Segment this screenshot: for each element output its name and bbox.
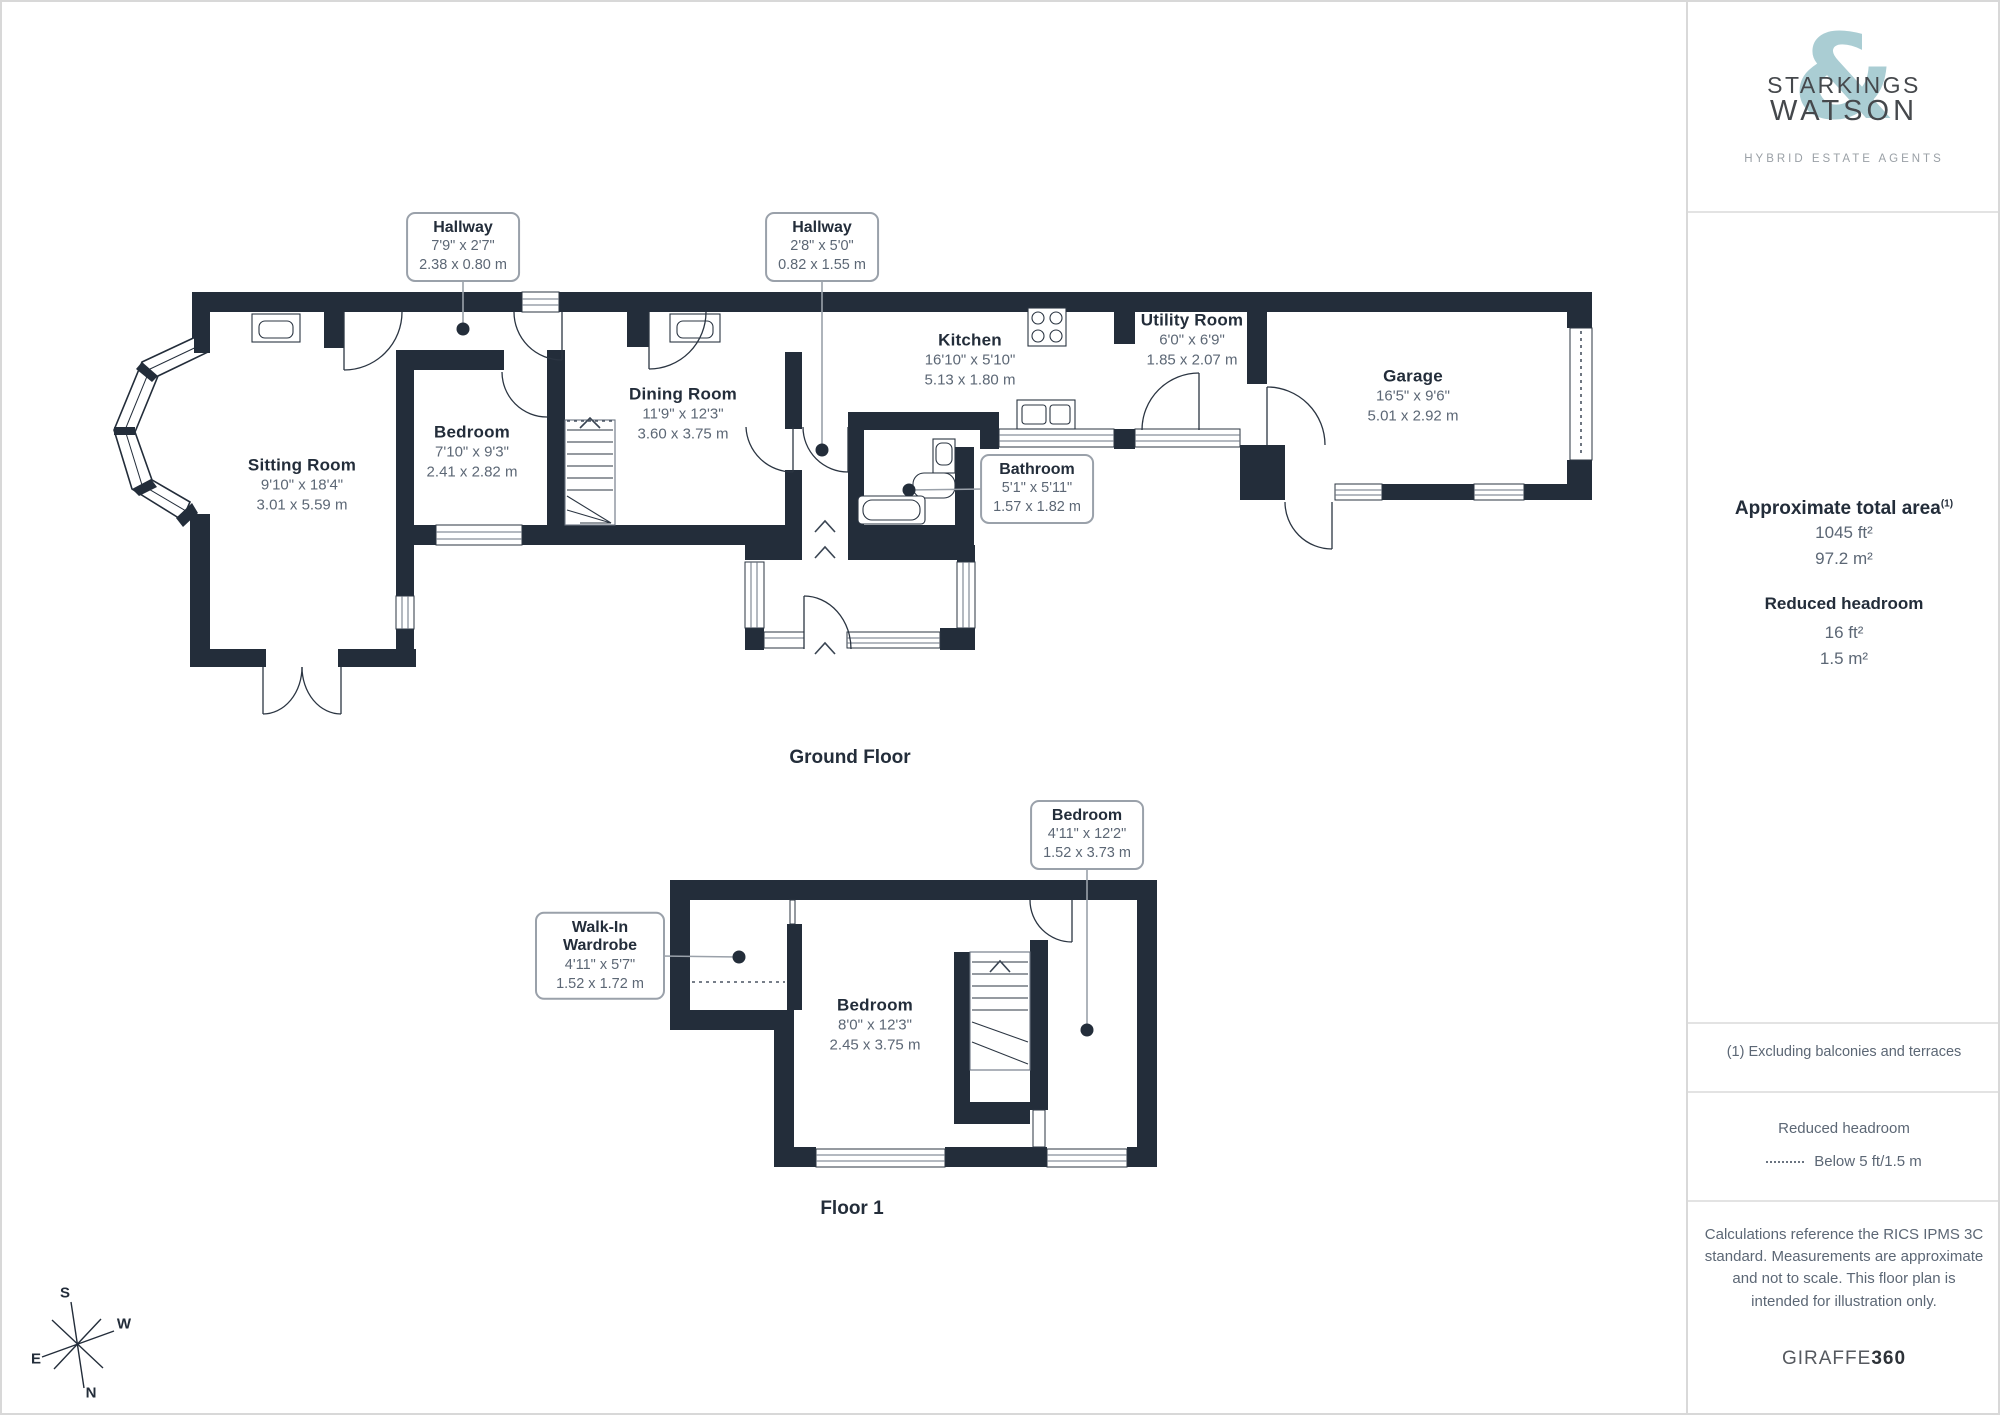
callout-bathroom: Bathroom 5'1" x 5'11" 1.57 x 1.82 m [980,454,1094,524]
provider-logo: GIRAFFE360 [1688,1348,2000,1370]
section-divider-1 [1688,211,2000,213]
section-divider-3 [1688,1091,2000,1093]
footnote-ref: (1) [1941,499,1953,510]
window-seat-symbols [252,314,720,342]
dashed-line-icon [1766,1161,1804,1163]
floor1-arrows [990,961,1010,972]
floor1-doors [1030,900,1072,942]
bay-window [114,332,210,527]
ground-stairs [565,420,615,525]
footnote-text: (1) Excluding balconies and terraces [1688,1044,2000,1060]
callout-bedroom-floor1: Bedroom 4'11" x 12'2" 1.52 x 3.73 m [1030,800,1144,870]
total-area-metric: 97.2 m² [1688,546,2000,572]
compass-icon [42,1302,114,1388]
floor1-title: Floor 1 [820,1198,883,1220]
disclaimer-text: Calculations reference the RICS IPMS 3C … [1704,1224,1984,1313]
section-divider-4 [1688,1200,2000,1202]
reduced-headroom-metric: 1.5 m² [1688,646,2000,672]
compass-north-label: N [86,1385,97,1402]
headroom-legend: Reduced headroom Below 5 ft/1.5 m [1688,1120,2000,1170]
room-label-sitting-room: Sitting Room 9'10" x 18'4" 3.01 x 5.59 m [248,456,356,515]
room-label-bedroom-ground: Bedroom 7'10" x 9'3" 2.41 x 2.82 m [427,423,518,482]
provider-suffix: 360 [1871,1348,1906,1369]
floor1-stairs [970,952,1030,1070]
floorplan-drawing [2,2,2000,1415]
compass-east-label: E [31,1351,41,1368]
provider-name: GIRAFFE [1782,1348,1871,1369]
logo-tagline: HYBRID ESTATE AGENTS [1688,153,2000,165]
room-label-dining-room: Dining Room 11'9" x 12'3" 3.60 x 3.75 m [629,385,737,444]
reduced-headroom-title: Reduced headroom [1688,594,2000,614]
area-summary: Approximate total area(1) 1045 ft² 97.2 … [1688,498,2000,672]
compass-south-label: S [60,1285,70,1302]
compass-west-label: W [117,1316,131,1333]
basin-icon [913,473,955,498]
room-label-kitchen: Kitchen 16'10" x 5'10" 5.13 x 1.80 m [925,331,1016,390]
reduced-headroom-imperial: 16 ft² [1688,620,2000,646]
floorplan-page: Sitting Room 9'10" x 18'4" 3.01 x 5.59 m… [0,0,2000,1415]
total-area-title: Approximate total area(1) [1688,498,2000,520]
logo-line2: WATSON [1688,95,2000,128]
room-label-garage: Garage 16'5" x 9'6" 5.01 x 2.92 m [1368,367,1459,426]
section-divider-2 [1688,1022,2000,1024]
total-area-imperial: 1045 ft² [1688,520,2000,546]
callout-walk-in-wardrobe: Walk-In Wardrobe 4'11" x 5'7" 1.52 x 1.7… [535,912,665,1000]
legend-label: Below 5 ft/1.5 m [1814,1153,1922,1170]
room-label-bedroom-floor1: Bedroom 8'0" x 12'3" 2.45 x 3.75 m [830,996,921,1055]
callout-hallway-2: Hallway 2'8" x 5'0" 0.82 x 1.55 m [765,212,879,282]
callout-hallway-1: Hallway 7'9" x 2'7" 2.38 x 0.80 m [406,212,520,282]
room-label-utility-room: Utility Room 6'0" x 6'9" 1.85 x 2.07 m [1141,311,1244,370]
agency-logo: & STARKINGS WATSON HYBRID ESTATE AGENTS [1688,2,2000,211]
legend-title: Reduced headroom [1688,1120,2000,1137]
ground-floor-title: Ground Floor [789,747,910,769]
